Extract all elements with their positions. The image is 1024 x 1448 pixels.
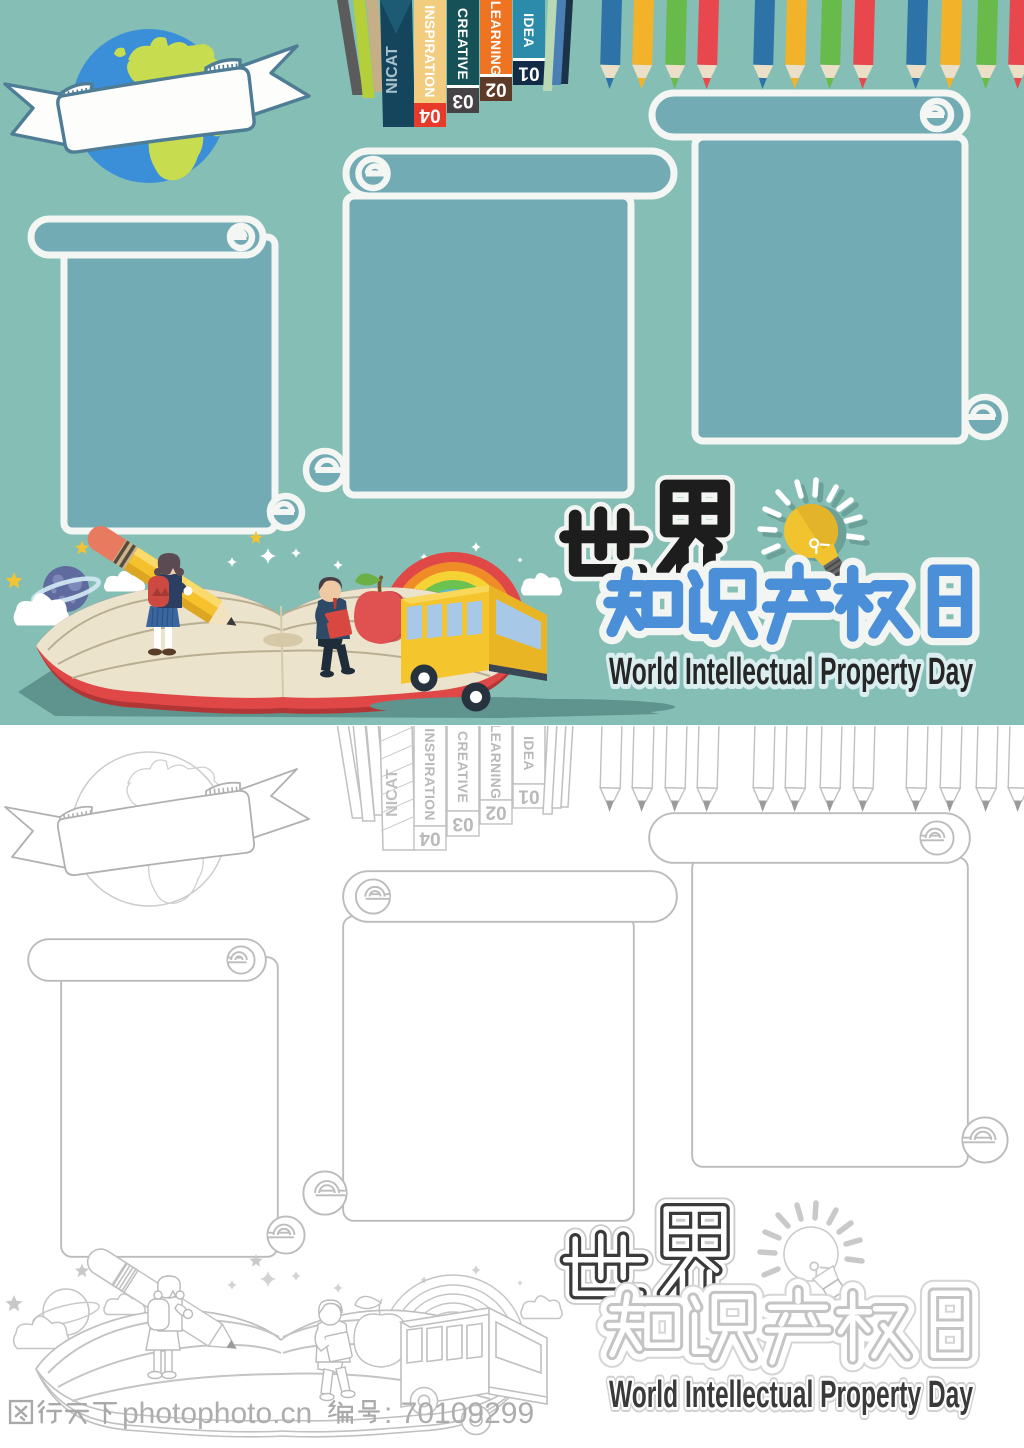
svg-text:04: 04 bbox=[419, 828, 441, 849]
svg-text:03: 03 bbox=[452, 90, 473, 111]
svg-text:NICAT: NICAT bbox=[384, 46, 401, 94]
svg-text:IDEA: IDEA bbox=[521, 13, 537, 48]
svg-text:: 70109299: : 70109299 bbox=[384, 1397, 534, 1430]
svg-text:CREATIVE: CREATIVE bbox=[455, 8, 471, 80]
svg-text:02: 02 bbox=[485, 802, 506, 823]
svg-text:World Intellectual Property Da: World Intellectual Property Day bbox=[609, 1374, 973, 1416]
svg-text:04: 04 bbox=[419, 105, 441, 126]
svg-text:INSPIRATION: INSPIRATION bbox=[422, 5, 438, 98]
svg-text:IDEA: IDEA bbox=[521, 736, 537, 771]
svg-text:03: 03 bbox=[452, 813, 473, 834]
svg-text:LEARNING: LEARNING bbox=[488, 724, 504, 800]
svg-text:INSPIRATION: INSPIRATION bbox=[422, 728, 438, 821]
svg-text:photophoto.cn: photophoto.cn bbox=[122, 1397, 312, 1430]
svg-text:01: 01 bbox=[518, 786, 540, 807]
svg-text:NICAT: NICAT bbox=[384, 769, 401, 817]
svg-text:01: 01 bbox=[518, 63, 540, 84]
svg-text:02: 02 bbox=[485, 79, 506, 100]
svg-text:World Intellectual Property Da: World Intellectual Property Day bbox=[609, 651, 973, 693]
svg-text:CREATIVE: CREATIVE bbox=[455, 731, 471, 803]
svg-text:LEARNING: LEARNING bbox=[488, 1, 504, 77]
